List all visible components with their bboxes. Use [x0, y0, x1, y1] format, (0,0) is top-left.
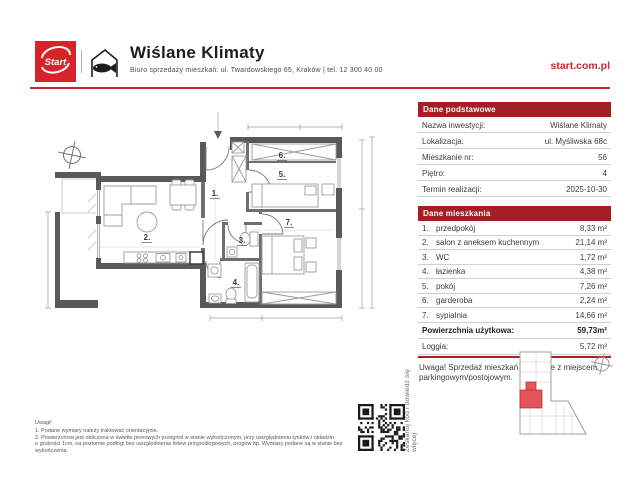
row-label: Mieszkanie nr: [422, 153, 598, 162]
room-no: 2. [422, 238, 436, 247]
row-value: ul. Myśliwska 68c [545, 137, 607, 146]
table-row: Nazwa inwestycji: Wiślane Klimaty [418, 117, 611, 133]
total-label: Powierzchnia użytkowa: [422, 326, 577, 335]
pillow [294, 239, 302, 252]
neighbour-loggia-outline [62, 179, 98, 213]
room-area: 14,66 m² [575, 311, 607, 320]
row-label: Termin realizacji: [422, 185, 566, 194]
table-row: Lokalizacja: ul. Myśliwska 68c [418, 133, 611, 149]
total-area-row: Powierzchnia użytkowa: 59,73m² [418, 323, 611, 339]
nightstand [322, 184, 334, 195]
room-area: 1,72 m² [580, 253, 607, 262]
pillow [294, 257, 302, 270]
nightstand [306, 262, 316, 272]
basic-info-header: Dane podstawowe [418, 102, 611, 117]
row-value: 56 [598, 153, 607, 162]
furniture [104, 142, 336, 304]
table-row: 7. sypialnia 14,66 m² [418, 308, 611, 323]
footnote-line: 1. Podane wymiary należy traktować orien… [35, 428, 365, 435]
qr-caption: Zeskanuj kod i dowiedz się więcej [404, 348, 418, 452]
footnote-line: o grubości 1cm, na poziomie podłogi bez … [35, 441, 365, 455]
stove-burner [137, 258, 141, 262]
pillow [305, 186, 316, 195]
room-name: salon z aneksem kuchennym [436, 238, 575, 247]
logo-separator [81, 50, 82, 73]
utility-shaft [190, 252, 203, 264]
table-row: 4. łazienka 4,38 m² [418, 265, 611, 280]
room-area: 21,14 m² [575, 238, 607, 247]
compass-icon [55, 138, 88, 171]
row-label: Nazwa inwestycji: [422, 121, 550, 130]
room-no: 6. [422, 296, 436, 305]
row-value: Wiślane Klimaty [550, 121, 607, 130]
stove-burner [144, 258, 148, 262]
room-no: 3. [422, 253, 436, 262]
round-table [137, 212, 157, 232]
mini-compass-icon [589, 351, 615, 377]
table-row: 2. salon z aneksem kuchennym 21,14 m² [418, 236, 611, 251]
room-area: 4,38 m² [580, 267, 607, 276]
room-area: 7,26 m² [580, 282, 607, 291]
entrance-arrow-icon [214, 131, 222, 139]
room-label-1: 1. [212, 189, 219, 198]
row-label: Lokalizacja: [422, 137, 545, 146]
table-row: Termin realizacji: 2025-10-30 [418, 181, 611, 197]
floor-plan: 1. 2. 3. 4. 5. 6. 7. [45, 100, 395, 335]
footnotes-title: Uwagi! [35, 420, 365, 427]
total-value: 59,73m² [577, 326, 607, 335]
start-logo-graphic: Start [35, 41, 76, 82]
table-row: Piętro: 4 [418, 165, 611, 181]
room-label-3: 3. [239, 236, 246, 245]
toilet-tank [250, 232, 258, 246]
header-title-block: Wiślane Klimaty Biuro sprzedaży mieszkań… [130, 43, 383, 74]
dining-table [170, 185, 196, 205]
stove-burner [137, 254, 141, 258]
website-link[interactable]: start.com.pl [550, 60, 610, 72]
stove-burner [144, 254, 148, 258]
building-key-plan [506, 346, 621, 448]
room-label-4: 4. [233, 278, 240, 287]
qr-code [358, 404, 405, 451]
room-name: sypialnia [436, 311, 575, 320]
row-label: Piętro: [422, 169, 603, 178]
room-name: WC [436, 253, 580, 262]
nightstand [306, 238, 316, 248]
row-value: 4 [603, 169, 607, 178]
room-label-6: 6. [279, 151, 286, 160]
room-label-7: 7. [286, 218, 293, 227]
table-row: 5. pokój 7,26 m² [418, 279, 611, 294]
table-row: 1. przedpokój 8,33 m² [418, 221, 611, 236]
room-label-2: 2. [144, 233, 151, 242]
room-name: garderoba [436, 296, 580, 305]
table-row: 3. WC 1,72 m² [418, 250, 611, 265]
flyer-page: { "header": { "logo_text": "Start", "tit… [0, 0, 640, 480]
apartment-info-header: Dane mieszkania [418, 206, 611, 221]
basic-info-table: Dane podstawowe Nazwa inwestycji: Wiślan… [418, 102, 611, 197]
start-logo-text: Start [45, 57, 67, 68]
row-value: 2025-10-30 [566, 185, 607, 194]
room-name: przedpokój [436, 224, 580, 233]
page-title: Wiślane Klimaty [130, 43, 383, 63]
room-area: 8,33 m² [580, 224, 607, 233]
header-rule [30, 87, 610, 89]
table-row: 6. garderoba 2,24 m² [418, 294, 611, 309]
room-no: 5. [422, 282, 436, 291]
toilet-tank [226, 299, 236, 304]
table-row: Mieszkanie nr: 56 [418, 149, 611, 165]
room-no: 7. [422, 311, 436, 320]
room-no: 4. [422, 267, 436, 276]
room-name: łazienka [436, 267, 580, 276]
start-logo: Start [35, 41, 76, 82]
room-no: 1. [422, 224, 436, 233]
partition-walls [201, 142, 336, 305]
footnote-line: 2. Powierzchnia jest obliczona w świetle… [35, 435, 365, 442]
dimension-lines [45, 112, 375, 321]
page-subtitle: Biuro sprzedaży mieszkań: ul. Twardowski… [130, 67, 383, 74]
house-fish-icon [88, 46, 121, 86]
toilet [226, 288, 236, 300]
room-area: 2,24 m² [580, 296, 607, 305]
room-label-5: 5. [279, 170, 286, 179]
footnotes: Uwagi! 1. Podane wymiary należy traktowa… [35, 420, 365, 455]
room-name: pokój [436, 282, 580, 291]
